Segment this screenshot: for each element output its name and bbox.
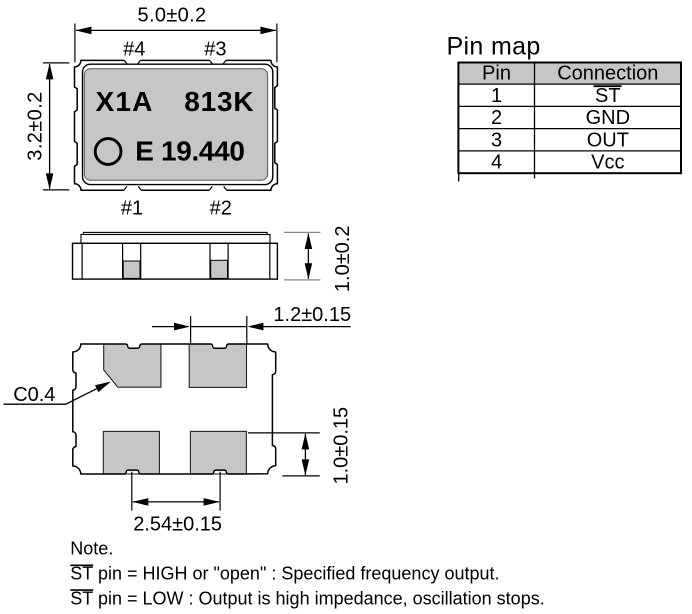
svg-text:813K: 813K: [184, 86, 254, 117]
svg-text:3.2±0.2: 3.2±0.2: [25, 91, 47, 160]
svg-text:ST pin = LOW : Output is high: ST pin = LOW : Output is high impedance,…: [70, 588, 544, 608]
svg-text:X1A: X1A: [96, 86, 154, 117]
svg-text:Connection: Connection: [557, 63, 658, 85]
svg-text:Pin: Pin: [482, 63, 511, 85]
svg-text:ST pin = HIGH or "open" : Spec: ST pin = HIGH or "open" : Specified freq…: [70, 564, 499, 584]
svg-text:Vcc: Vcc: [591, 152, 624, 174]
svg-text:#3: #3: [204, 38, 226, 60]
svg-text:OUT: OUT: [587, 129, 629, 151]
svg-text:1.2±0.15: 1.2±0.15: [273, 304, 351, 326]
svg-text:4: 4: [491, 152, 502, 174]
svg-text:ST: ST: [595, 85, 621, 107]
svg-text:2: 2: [491, 107, 502, 129]
svg-text:#2: #2: [210, 197, 232, 219]
svg-text:5.0±0.2: 5.0±0.2: [137, 5, 206, 27]
svg-text:C0.4: C0.4: [13, 384, 55, 406]
svg-text:2.54±0.15: 2.54±0.15: [133, 514, 222, 536]
svg-text:E 19.440: E 19.440: [135, 135, 244, 166]
svg-text:GND: GND: [586, 107, 630, 129]
svg-text:1.0±0.15: 1.0±0.15: [331, 407, 353, 485]
svg-text:#4: #4: [123, 38, 145, 60]
svg-text:3: 3: [491, 129, 502, 151]
svg-text:1: 1: [491, 85, 502, 107]
svg-text:Note.: Note.: [70, 539, 113, 559]
svg-text:Pin map: Pin map: [447, 32, 541, 60]
svg-text:#1: #1: [121, 197, 143, 219]
svg-text:1.0±0.2: 1.0±0.2: [332, 226, 354, 293]
